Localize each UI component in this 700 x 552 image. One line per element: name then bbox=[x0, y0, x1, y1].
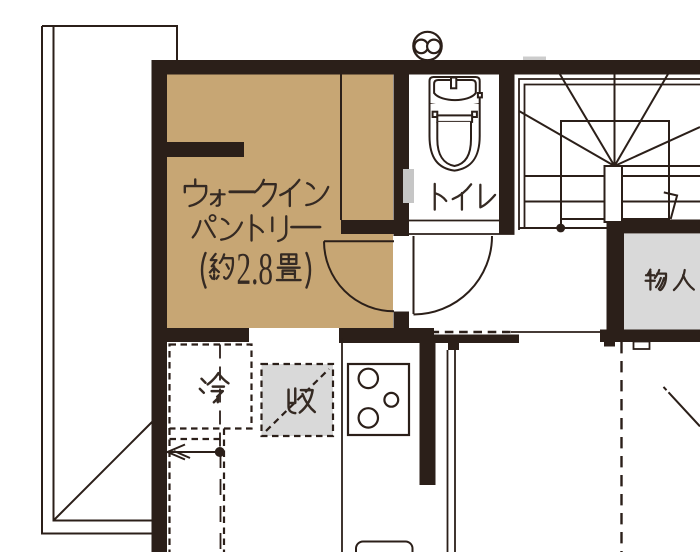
svg-text:2.8: 2.8 bbox=[237, 244, 274, 294]
